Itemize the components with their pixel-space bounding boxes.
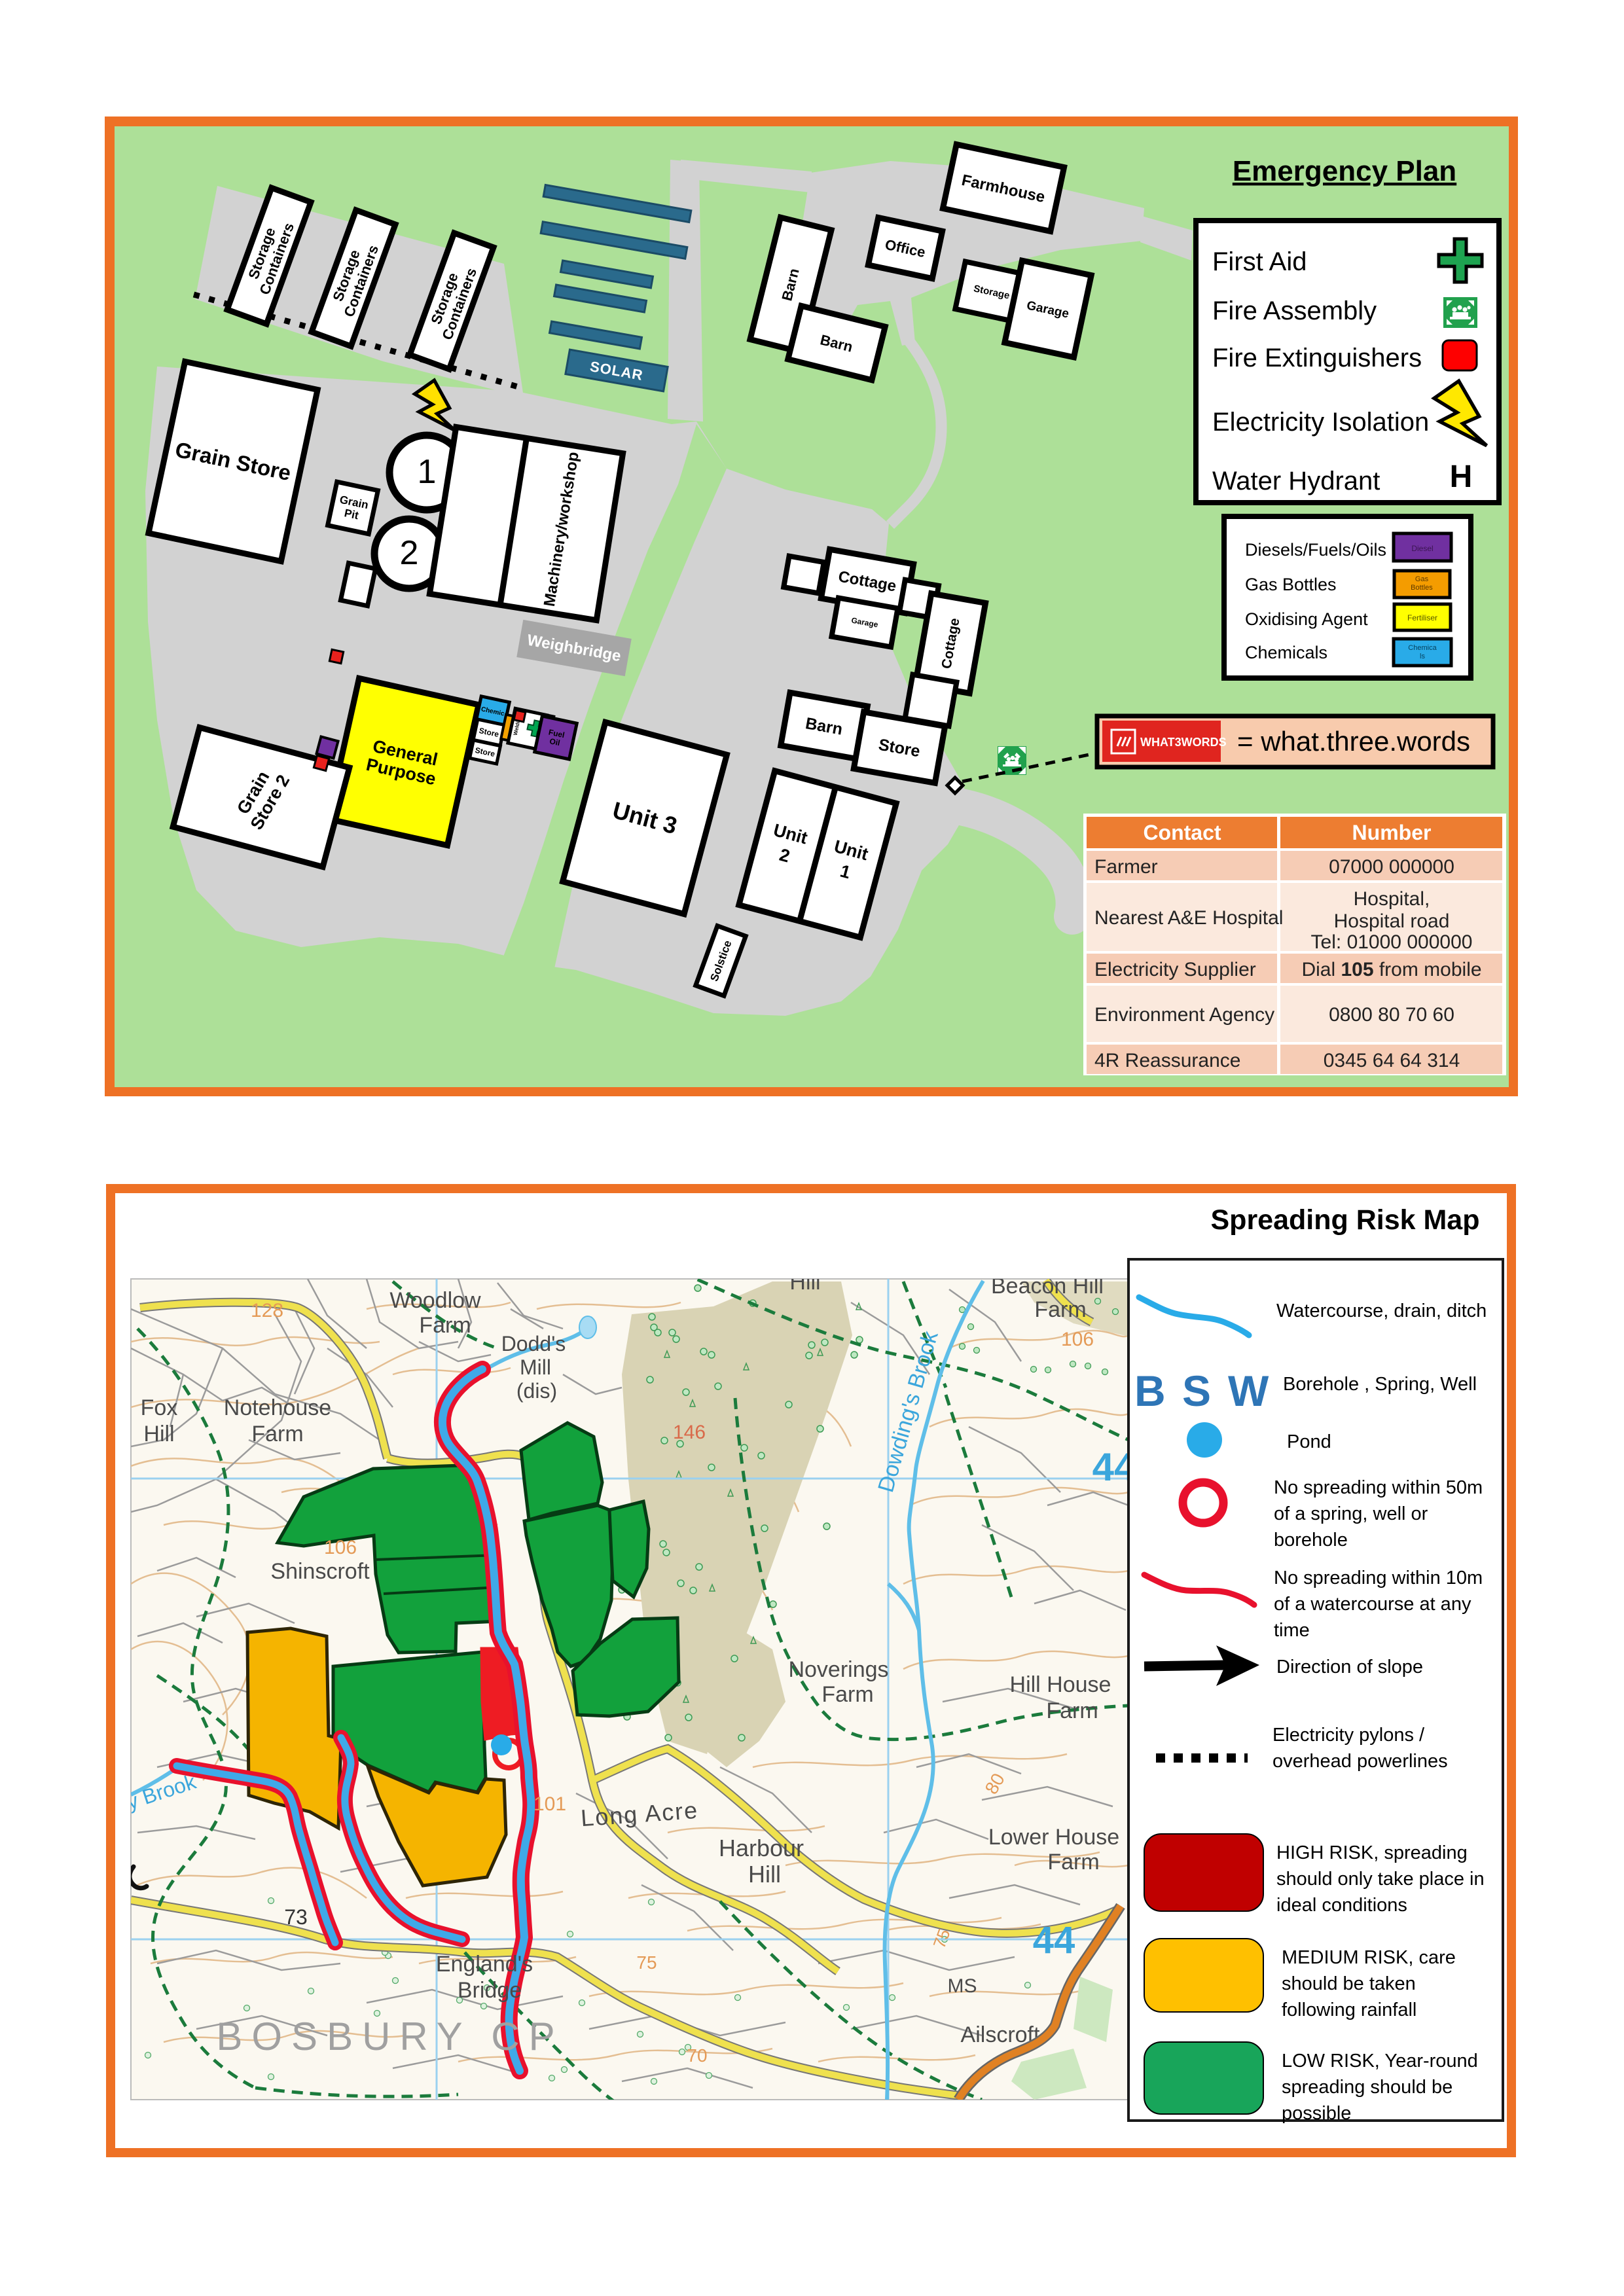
- svg-text:Contact: Contact: [1143, 821, 1221, 844]
- svg-text:S: S: [1182, 1367, 1211, 1415]
- svg-text:73: 73: [284, 1905, 308, 1929]
- svg-text:Harbour: Harbour: [719, 1835, 804, 1861]
- svg-text:MEDIUM RISK, care: MEDIUM RISK, care: [1282, 1947, 1456, 1968]
- svg-text:07000 000000: 07000 000000: [1329, 856, 1454, 878]
- svg-text:H: H: [1450, 459, 1473, 494]
- svg-text:Watercourse, drain, ditch: Watercourse, drain, ditch: [1276, 1300, 1487, 1321]
- svg-text:106: 106: [324, 1537, 357, 1558]
- svg-text:ideal conditions: ideal conditions: [1276, 1895, 1407, 1916]
- svg-text:Noverings: Noverings: [788, 1657, 888, 1682]
- svg-text:of a spring, well or: of a spring, well or: [1274, 1503, 1428, 1524]
- svg-text:Environment Agency: Environment Agency: [1094, 1004, 1274, 1026]
- svg-text:Farm: Farm: [1034, 1297, 1086, 1322]
- svg-text:0345 64 64 314: 0345 64 64 314: [1324, 1050, 1460, 1071]
- svg-text:No spreading within 50m: No spreading within 50m: [1274, 1477, 1483, 1498]
- svg-text:Tel: 01000 000000: Tel: 01000 000000: [1311, 931, 1473, 953]
- svg-text:Farm: Farm: [419, 1313, 471, 1338]
- svg-text:Fire Extinguishers: Fire Extinguishers: [1212, 344, 1422, 372]
- svg-text:overhead powerlines: overhead powerlines: [1272, 1751, 1448, 1772]
- svg-text:Farm: Farm: [1047, 1850, 1099, 1874]
- svg-text:Oxidising Agent: Oxidising Agent: [1245, 609, 1368, 629]
- svg-text:(dis): (dis): [516, 1379, 557, 1403]
- svg-text:Diesel: Diesel: [1411, 544, 1433, 553]
- svg-text:44: 44: [1033, 1919, 1075, 1962]
- svg-text:75: 75: [636, 1952, 657, 1973]
- svg-text:Fertiliser: Fertiliser: [1407, 613, 1437, 622]
- svg-text:Hill: Hill: [143, 1422, 174, 1446]
- svg-text:Chemica: Chemica: [1408, 644, 1437, 652]
- svg-text:= what.three.words: = what.three.words: [1237, 726, 1470, 757]
- svg-text:Hill House: Hill House: [1010, 1672, 1111, 1697]
- svg-text:Gas: Gas: [1415, 575, 1429, 583]
- svg-text:HIGH RISK, spreading: HIGH RISK, spreading: [1276, 1842, 1468, 1863]
- svg-text:Hospital,: Hospital,: [1354, 888, 1430, 910]
- svg-text:First Aid: First Aid: [1212, 247, 1307, 276]
- svg-text:128: 128: [251, 1300, 283, 1321]
- svg-text:106: 106: [1061, 1329, 1094, 1350]
- svg-text:Emergency Plan: Emergency Plan: [1233, 155, 1456, 187]
- svg-text:Nearest A&E Hospital: Nearest A&E Hospital: [1094, 907, 1283, 929]
- svg-text:Diesels/Fuels/Oils: Diesels/Fuels/Oils: [1245, 540, 1386, 560]
- svg-text:Gas Bottles: Gas Bottles: [1245, 575, 1337, 594]
- svg-text:LOW RISK, Year-round: LOW RISK, Year-round: [1282, 2051, 1478, 2072]
- svg-text:Hospital road: Hospital road: [1334, 910, 1450, 932]
- svg-text:Fox: Fox: [141, 1395, 178, 1420]
- svg-text:146: 146: [673, 1422, 706, 1443]
- svg-text:Bottles: Bottles: [1411, 584, 1433, 592]
- svg-text:Lower House: Lower House: [988, 1825, 1119, 1850]
- svg-text:0800 80 70 60: 0800 80 70 60: [1329, 1004, 1454, 1026]
- svg-text:borehole: borehole: [1274, 1530, 1348, 1551]
- svg-text:spreading should be: spreading should be: [1282, 2077, 1453, 2098]
- svg-text:England's: England's: [436, 1952, 533, 1977]
- svg-text:4R Reassurance: 4R Reassurance: [1094, 1050, 1240, 1071]
- svg-text:possible: possible: [1282, 2103, 1351, 2124]
- svg-text:Notehouse: Notehouse: [224, 1395, 331, 1420]
- svg-text:BOSBURY CP: BOSBURY CP: [216, 2015, 564, 2058]
- svg-text:W: W: [1228, 1367, 1269, 1415]
- svg-text:No spreading within 10m: No spreading within 10m: [1274, 1568, 1483, 1588]
- svg-text:Bridge: Bridge: [458, 1978, 522, 2003]
- svg-text:Spreading Risk Map: Spreading Risk Map: [1211, 1204, 1480, 1236]
- svg-text:following rainfall: following rainfall: [1282, 2000, 1416, 2020]
- svg-text:Dial 105 from mobile: Dial 105 from mobile: [1301, 959, 1481, 980]
- svg-text:Shinscroft: Shinscroft: [270, 1559, 370, 1584]
- svg-text:Mill: Mill: [520, 1355, 551, 1379]
- svg-text:Electricity Supplier: Electricity Supplier: [1094, 959, 1256, 980]
- svg-text:time: time: [1274, 1620, 1310, 1641]
- svg-text:Farm: Farm: [251, 1422, 303, 1446]
- svg-text:2: 2: [400, 534, 419, 572]
- svg-text:Farm: Farm: [1046, 1698, 1098, 1723]
- svg-text:of a watercourse at any: of a watercourse at any: [1274, 1594, 1471, 1615]
- svg-text:Chemicals: Chemicals: [1245, 643, 1327, 662]
- svg-text:WHAT3WORDS: WHAT3WORDS: [1140, 736, 1227, 749]
- svg-text:should only take place in: should only take place in: [1276, 1869, 1485, 1890]
- svg-text:Farm: Farm: [821, 1682, 873, 1707]
- svg-text:1: 1: [418, 453, 437, 491]
- svg-text:Number: Number: [1352, 821, 1432, 844]
- svg-text:70: 70: [687, 2045, 707, 2066]
- svg-text:MS: MS: [948, 1975, 977, 1997]
- svg-text:Fire Assembly: Fire Assembly: [1212, 296, 1377, 325]
- svg-text:Farmer: Farmer: [1094, 856, 1158, 878]
- svg-text:ls: ls: [1420, 653, 1425, 660]
- svg-text:Pond: Pond: [1287, 1431, 1331, 1452]
- svg-text:Woodlow: Woodlow: [389, 1288, 481, 1313]
- svg-text:Direction of slope: Direction of slope: [1276, 1657, 1423, 1677]
- svg-text:Dodd's: Dodd's: [501, 1332, 566, 1355]
- svg-text:should be taken: should be taken: [1282, 1973, 1416, 1994]
- svg-text:Electricity Isolation: Electricity Isolation: [1212, 408, 1429, 437]
- svg-text:Borehole , Spring, Well: Borehole , Spring, Well: [1283, 1374, 1477, 1395]
- svg-text:Water Hydrant: Water Hydrant: [1212, 467, 1380, 495]
- svg-text:B: B: [1134, 1367, 1166, 1415]
- svg-text:Electricity pylons /: Electricity pylons /: [1272, 1725, 1425, 1746]
- svg-text:101: 101: [533, 1793, 566, 1815]
- svg-text:Hill: Hill: [748, 1861, 781, 1888]
